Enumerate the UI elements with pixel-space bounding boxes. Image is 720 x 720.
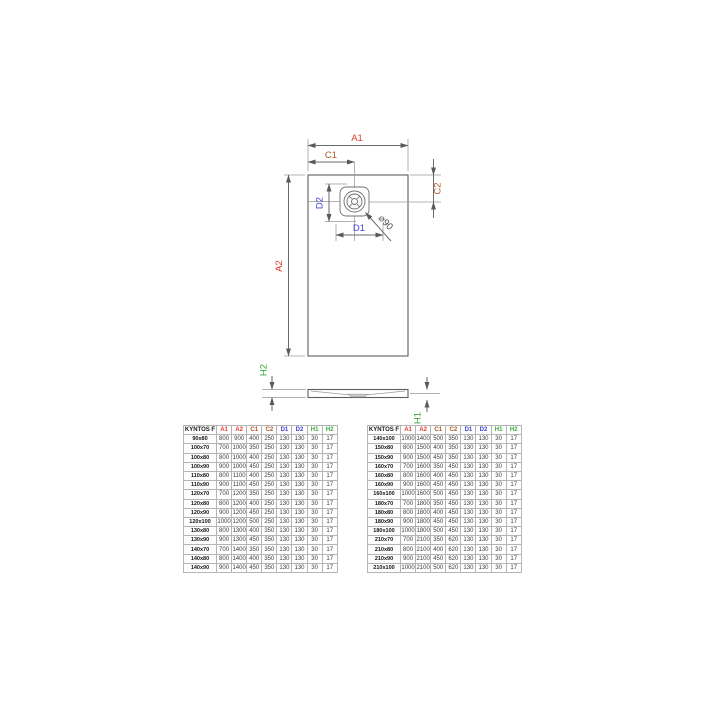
dim-value: 130 bbox=[292, 554, 307, 563]
dim-value: 250 bbox=[262, 462, 277, 471]
size-label: 100x70 bbox=[184, 444, 217, 453]
dim-value: 1600 bbox=[416, 471, 431, 480]
table-row: 120x9090012004502501301303017 bbox=[184, 508, 338, 517]
dim-value: 17 bbox=[506, 517, 521, 526]
dim-value: 17 bbox=[322, 499, 337, 508]
header-row: KYNTOS FA1A2C1C2D1D2H1H2 bbox=[368, 426, 522, 435]
size-label: 100x90 bbox=[184, 462, 217, 471]
col-header-kyntos-f: KYNTOS F bbox=[184, 426, 217, 435]
dim-value: 130 bbox=[277, 471, 292, 480]
dim-value: 30 bbox=[307, 554, 322, 563]
dim-value: 400 bbox=[431, 471, 446, 480]
dim-value: 1000 bbox=[232, 462, 247, 471]
dim-value: 130 bbox=[476, 545, 491, 554]
dim-value: 1200 bbox=[232, 499, 247, 508]
dim-value: 1600 bbox=[416, 462, 431, 471]
dim-value: 1300 bbox=[232, 536, 247, 545]
size-label: 150x80 bbox=[368, 444, 401, 453]
dim-value: 1400 bbox=[232, 545, 247, 554]
dim-value: 450 bbox=[446, 490, 461, 499]
dim-value: 30 bbox=[307, 490, 322, 499]
dim-value: 800 bbox=[401, 508, 416, 517]
table-row: 180x8080018004004501301303017 bbox=[368, 508, 522, 517]
dim-value: 800 bbox=[401, 444, 416, 453]
dim-value: 400 bbox=[247, 554, 262, 563]
dim-value: 900 bbox=[217, 536, 232, 545]
table-row: 160x7070016003504501301303017 bbox=[368, 462, 522, 471]
dim-value: 130 bbox=[277, 435, 292, 444]
dim-value: 130 bbox=[292, 462, 307, 471]
dim-value: 130 bbox=[277, 462, 292, 471]
dim-value: 1200 bbox=[232, 490, 247, 499]
dim-value: 17 bbox=[506, 563, 521, 572]
size-label: 140x90 bbox=[184, 563, 217, 572]
size-label: 160x100 bbox=[368, 490, 401, 499]
size-label: 90x80 bbox=[184, 435, 217, 444]
dim-value: 130 bbox=[476, 462, 491, 471]
dim-value: 30 bbox=[307, 481, 322, 490]
table-row: 100x8080010004002501301303017 bbox=[184, 453, 338, 462]
col-header-h2: H2 bbox=[322, 426, 337, 435]
dim-value: 130 bbox=[292, 517, 307, 526]
h2-extension-lines bbox=[262, 390, 306, 398]
dim-value: 130 bbox=[292, 444, 307, 453]
col-header-a1: A1 bbox=[401, 426, 416, 435]
dim-value: 130 bbox=[476, 508, 491, 517]
size-label: 110x80 bbox=[184, 471, 217, 480]
dim-value: 17 bbox=[506, 444, 521, 453]
dim-value: 700 bbox=[217, 444, 232, 453]
dim-value: 400 bbox=[431, 444, 446, 453]
size-label: 120x70 bbox=[184, 490, 217, 499]
dim-value: 30 bbox=[491, 527, 506, 536]
dim-value: 700 bbox=[217, 545, 232, 554]
dim-value: 450 bbox=[247, 563, 262, 572]
col-header-a2: A2 bbox=[416, 426, 431, 435]
page: A1 C1 C2 A2 D2 D1 ⌀90 bbox=[0, 0, 720, 720]
dim-value: 130 bbox=[476, 453, 491, 462]
dim-value: 350 bbox=[262, 536, 277, 545]
table-row: 160x9090016004504501301303017 bbox=[368, 481, 522, 490]
dim-value: 1800 bbox=[416, 499, 431, 508]
dim-value: 1000 bbox=[401, 527, 416, 536]
dim-value: 900 bbox=[401, 554, 416, 563]
dim-label-a2: A2 bbox=[274, 260, 285, 272]
dim-value: 800 bbox=[217, 471, 232, 480]
table-row: 150x9090015004503501301303017 bbox=[368, 453, 522, 462]
dim-value: 800 bbox=[217, 554, 232, 563]
dim-value: 130 bbox=[277, 536, 292, 545]
dim-value: 350 bbox=[262, 545, 277, 554]
dim-value: 1800 bbox=[416, 517, 431, 526]
size-label: 160x90 bbox=[368, 481, 401, 490]
size-label: 210x80 bbox=[368, 545, 401, 554]
dim-value: 1000 bbox=[217, 517, 232, 526]
col-header-h1: H1 bbox=[491, 426, 506, 435]
dim-value: 130 bbox=[277, 481, 292, 490]
dim-value: 2100 bbox=[416, 563, 431, 572]
dim-value: 130 bbox=[277, 545, 292, 554]
dim-value: 800 bbox=[217, 499, 232, 508]
dim-value: 800 bbox=[401, 471, 416, 480]
dim-value: 450 bbox=[247, 462, 262, 471]
dim-value: 130 bbox=[476, 563, 491, 572]
plan-view: A1 C1 C2 A2 D2 D1 ⌀90 bbox=[274, 133, 444, 356]
size-label: 140x80 bbox=[184, 554, 217, 563]
dim-value: 500 bbox=[431, 563, 446, 572]
dim-label-h1: H1 bbox=[413, 412, 424, 424]
dim-value: 130 bbox=[277, 508, 292, 517]
dim-value: 17 bbox=[506, 481, 521, 490]
table-row: 160x100100016005004501301303017 bbox=[368, 490, 522, 499]
dim-value: 350 bbox=[262, 563, 277, 572]
dim-value: 450 bbox=[446, 481, 461, 490]
dim-value: 350 bbox=[431, 536, 446, 545]
drain-bump bbox=[348, 394, 368, 397]
dim-value: 30 bbox=[491, 490, 506, 499]
dim-value: 17 bbox=[506, 490, 521, 499]
size-label: 140x100 bbox=[368, 435, 401, 444]
dim-value: 900 bbox=[217, 508, 232, 517]
col-header-d2: D2 bbox=[292, 426, 307, 435]
col-header-c1: C1 bbox=[247, 426, 262, 435]
dim-value: 450 bbox=[431, 554, 446, 563]
dim-label-c2: C2 bbox=[433, 182, 444, 194]
dim-value: 17 bbox=[322, 490, 337, 499]
dim-value: 400 bbox=[247, 499, 262, 508]
dim-label-d2: D2 bbox=[315, 197, 326, 209]
a2-extension-lines bbox=[284, 175, 305, 356]
dim-value: 30 bbox=[491, 563, 506, 572]
dim-value: 17 bbox=[506, 453, 521, 462]
size-label: 120x100 bbox=[184, 517, 217, 526]
dim-value: 17 bbox=[506, 435, 521, 444]
dim-value: 17 bbox=[322, 471, 337, 480]
dim-value: 30 bbox=[491, 453, 506, 462]
dim-value: 450 bbox=[446, 462, 461, 471]
col-header-c2: C2 bbox=[262, 426, 277, 435]
dim-value: 30 bbox=[307, 517, 322, 526]
dim-value: 450 bbox=[431, 517, 446, 526]
dim-value: 130 bbox=[461, 536, 476, 545]
dim-value: 130 bbox=[461, 508, 476, 517]
table-row: 100x9090010004502501301303017 bbox=[184, 462, 338, 471]
size-label: 180x90 bbox=[368, 517, 401, 526]
dim-value: 1800 bbox=[416, 508, 431, 517]
dim-value: 1400 bbox=[416, 435, 431, 444]
dim-value: 130 bbox=[292, 563, 307, 572]
dim-value: 130 bbox=[292, 499, 307, 508]
dim-value: 30 bbox=[491, 444, 506, 453]
dim-value: 130 bbox=[277, 490, 292, 499]
col-header-h1: H1 bbox=[307, 426, 322, 435]
dim-value: 130 bbox=[461, 481, 476, 490]
dim-value: 1400 bbox=[232, 563, 247, 572]
dim-value: 17 bbox=[506, 527, 521, 536]
dim-value: 350 bbox=[446, 453, 461, 462]
table-row: 110x9090011004502501301303017 bbox=[184, 481, 338, 490]
dim-value: 30 bbox=[491, 499, 506, 508]
side-view: H2 H1 bbox=[259, 364, 441, 424]
dim-value: 900 bbox=[217, 462, 232, 471]
dim-value: 450 bbox=[431, 481, 446, 490]
dim-value: 130 bbox=[461, 490, 476, 499]
dim-value: 1500 bbox=[416, 453, 431, 462]
dim-value: 250 bbox=[262, 499, 277, 508]
dim-value: 250 bbox=[262, 490, 277, 499]
dim-value: 17 bbox=[322, 527, 337, 536]
dim-value: 130 bbox=[461, 545, 476, 554]
dim-value: 30 bbox=[307, 444, 322, 453]
dim-value: 500 bbox=[247, 517, 262, 526]
table-row: 130x8080013004003501301303017 bbox=[184, 527, 338, 536]
dim-value: 17 bbox=[506, 499, 521, 508]
dim-value: 800 bbox=[217, 453, 232, 462]
dim-value: 700 bbox=[217, 490, 232, 499]
dim-value: 130 bbox=[476, 517, 491, 526]
dim-value: 17 bbox=[506, 462, 521, 471]
dim-value: 17 bbox=[506, 471, 521, 480]
dim-value: 130 bbox=[277, 444, 292, 453]
dim-label-h2: H2 bbox=[259, 364, 270, 376]
table-row: 120x7070012003502501301303017 bbox=[184, 490, 338, 499]
dim-value: 130 bbox=[461, 444, 476, 453]
dim-value: 130 bbox=[461, 517, 476, 526]
dim-value: 350 bbox=[247, 490, 262, 499]
size-label: 110x90 bbox=[184, 481, 217, 490]
dim-value: 350 bbox=[262, 527, 277, 536]
dim-value: 30 bbox=[307, 499, 322, 508]
size-label: 160x70 bbox=[368, 462, 401, 471]
col-header-d1: D1 bbox=[461, 426, 476, 435]
dim-value: 130 bbox=[277, 563, 292, 572]
dim-value: 450 bbox=[446, 499, 461, 508]
size-label: 210x100 bbox=[368, 563, 401, 572]
dim-value: 30 bbox=[491, 481, 506, 490]
dim-value: 30 bbox=[307, 462, 322, 471]
col-header-c2: C2 bbox=[446, 426, 461, 435]
size-table-right: KYNTOS FA1A2C1C2D1D2H1H2140x100100014005… bbox=[367, 425, 522, 573]
dim-value: 130 bbox=[476, 481, 491, 490]
dim-value: 30 bbox=[307, 563, 322, 572]
dim-value: 1000 bbox=[232, 453, 247, 462]
table-row: 210x9090021004506201301303017 bbox=[368, 554, 522, 563]
table-row: 140x9090014004503501301303017 bbox=[184, 563, 338, 572]
dim-value: 900 bbox=[401, 481, 416, 490]
dim-value: 130 bbox=[292, 490, 307, 499]
dim-value: 900 bbox=[401, 517, 416, 526]
size-label: 150x90 bbox=[368, 453, 401, 462]
dim-value: 130 bbox=[476, 490, 491, 499]
dim-value: 130 bbox=[461, 453, 476, 462]
dim-value: 17 bbox=[322, 444, 337, 453]
dim-value: 130 bbox=[461, 563, 476, 572]
dim-value: 130 bbox=[461, 462, 476, 471]
col-header-d2: D2 bbox=[476, 426, 491, 435]
dim-value: 1100 bbox=[232, 481, 247, 490]
dim-value: 250 bbox=[262, 471, 277, 480]
dim-value: 450 bbox=[446, 517, 461, 526]
size-label: 140x70 bbox=[184, 545, 217, 554]
size-label: 130x90 bbox=[184, 536, 217, 545]
size-label: 180x70 bbox=[368, 499, 401, 508]
size-label: 100x80 bbox=[184, 453, 217, 462]
dim-value: 350 bbox=[247, 545, 262, 554]
dim-label-c1: C1 bbox=[325, 150, 337, 161]
dim-value: 700 bbox=[401, 499, 416, 508]
table-row: 110x8080011004002501301303017 bbox=[184, 471, 338, 480]
dim-value: 30 bbox=[491, 536, 506, 545]
table-row: 160x8080016004004501301303017 bbox=[368, 471, 522, 480]
dim-value: 350 bbox=[446, 444, 461, 453]
dim-value: 30 bbox=[307, 536, 322, 545]
size-label: 120x90 bbox=[184, 508, 217, 517]
dim-value: 800 bbox=[401, 545, 416, 554]
dim-value: 30 bbox=[307, 545, 322, 554]
dim-value: 130 bbox=[461, 554, 476, 563]
dim-value: 250 bbox=[262, 508, 277, 517]
size-label: 120x80 bbox=[184, 499, 217, 508]
dim-value: 700 bbox=[401, 462, 416, 471]
dim-value: 620 bbox=[446, 545, 461, 554]
dim-value: 130 bbox=[292, 536, 307, 545]
dim-value: 1600 bbox=[416, 490, 431, 499]
dim-value: 130 bbox=[461, 471, 476, 480]
dim-value: 400 bbox=[247, 453, 262, 462]
dim-value: 30 bbox=[307, 435, 322, 444]
dim-value: 30 bbox=[307, 527, 322, 536]
dim-value: 17 bbox=[322, 545, 337, 554]
table-row: 130x9090013004503501301303017 bbox=[184, 536, 338, 545]
dim-value: 130 bbox=[461, 435, 476, 444]
dim-value: 30 bbox=[491, 508, 506, 517]
dim-value: 450 bbox=[446, 508, 461, 517]
dim-value: 450 bbox=[247, 481, 262, 490]
col-header-h2: H2 bbox=[506, 426, 521, 435]
dim-value: 350 bbox=[262, 554, 277, 563]
dim-value: 350 bbox=[446, 435, 461, 444]
dim-value: 250 bbox=[262, 453, 277, 462]
table-row: 180x7070018003504501301303017 bbox=[368, 499, 522, 508]
dim-value: 1200 bbox=[232, 517, 247, 526]
dim-value: 130 bbox=[476, 499, 491, 508]
dim-value: 400 bbox=[431, 508, 446, 517]
dim-value: 620 bbox=[446, 536, 461, 545]
dim-value: 450 bbox=[446, 471, 461, 480]
table-row: 90x808009004002501301303017 bbox=[184, 435, 338, 444]
dim-value: 1800 bbox=[416, 527, 431, 536]
table-row: 120x100100012005002501301303017 bbox=[184, 517, 338, 526]
dim-value: 30 bbox=[491, 554, 506, 563]
dim-value: 400 bbox=[247, 435, 262, 444]
size-label: 180x80 bbox=[368, 508, 401, 517]
dim-value: 130 bbox=[292, 481, 307, 490]
dim-value: 450 bbox=[247, 508, 262, 517]
dim-value: 350 bbox=[431, 499, 446, 508]
col-header-a1: A1 bbox=[217, 426, 232, 435]
table-row: 210x8080021004006201301303017 bbox=[368, 545, 522, 554]
dim-value: 130 bbox=[476, 435, 491, 444]
dim-value: 2100 bbox=[416, 554, 431, 563]
dim-value: 250 bbox=[262, 517, 277, 526]
dim-value: 2100 bbox=[416, 536, 431, 545]
dim-value: 17 bbox=[322, 536, 337, 545]
dim-value: 130 bbox=[292, 471, 307, 480]
dim-value: 30 bbox=[491, 517, 506, 526]
dim-value: 130 bbox=[277, 517, 292, 526]
dim-value: 17 bbox=[322, 462, 337, 471]
dim-value: 130 bbox=[476, 536, 491, 545]
dim-value: 1000 bbox=[401, 563, 416, 572]
dim-value: 30 bbox=[491, 471, 506, 480]
dim-label-a1: A1 bbox=[351, 133, 363, 144]
size-label: 180x100 bbox=[368, 527, 401, 536]
dim-value: 17 bbox=[322, 508, 337, 517]
table-row: 120x8080012004002501301303017 bbox=[184, 499, 338, 508]
dim-value: 500 bbox=[431, 490, 446, 499]
dim-value: 30 bbox=[307, 508, 322, 517]
dim-value: 130 bbox=[277, 554, 292, 563]
dim-value: 30 bbox=[307, 471, 322, 480]
dim-value: 17 bbox=[506, 554, 521, 563]
dim-value: 1000 bbox=[232, 444, 247, 453]
dim-value: 17 bbox=[322, 563, 337, 572]
dim-value: 17 bbox=[322, 435, 337, 444]
dim-value: 1000 bbox=[401, 490, 416, 499]
dim-value: 130 bbox=[476, 554, 491, 563]
dim-value: 250 bbox=[262, 444, 277, 453]
dim-value: 1400 bbox=[232, 554, 247, 563]
dim-value: 900 bbox=[217, 563, 232, 572]
table-row: 100x7070010003502501301303017 bbox=[184, 444, 338, 453]
dim-value: 130 bbox=[292, 545, 307, 554]
size-label: 130x80 bbox=[184, 527, 217, 536]
dim-value: 130 bbox=[461, 499, 476, 508]
dim-value: 130 bbox=[277, 499, 292, 508]
table-row: 140x8080014004003501301303017 bbox=[184, 554, 338, 563]
dim-value: 450 bbox=[446, 527, 461, 536]
dim-value: 800 bbox=[217, 527, 232, 536]
dim-value: 350 bbox=[431, 462, 446, 471]
dim-value: 800 bbox=[217, 435, 232, 444]
technical-drawing: A1 C1 C2 A2 D2 D1 ⌀90 bbox=[0, 0, 720, 720]
dim-value: 500 bbox=[431, 527, 446, 536]
dim-value: 130 bbox=[476, 527, 491, 536]
table-row: 150x8080015004003501301303017 bbox=[368, 444, 522, 453]
dim-value: 900 bbox=[217, 481, 232, 490]
size-label: 160x80 bbox=[368, 471, 401, 480]
dim-value: 1100 bbox=[232, 471, 247, 480]
dim-value: 130 bbox=[292, 527, 307, 536]
col-header-c1: C1 bbox=[431, 426, 446, 435]
dim-value: 30 bbox=[491, 435, 506, 444]
size-table-left: KYNTOS FA1A2C1C2D1D2H1H290x8080090040025… bbox=[183, 425, 338, 573]
dim-value: 17 bbox=[322, 453, 337, 462]
dim-value: 450 bbox=[431, 453, 446, 462]
dim-value: 1200 bbox=[232, 508, 247, 517]
header-row: KYNTOS FA1A2C1C2D1D2H1H2 bbox=[184, 426, 338, 435]
dim-value: 130 bbox=[461, 527, 476, 536]
dim-value: 30 bbox=[491, 462, 506, 471]
dim-value: 250 bbox=[262, 435, 277, 444]
dim-value: 30 bbox=[491, 545, 506, 554]
dim-value: 130 bbox=[292, 435, 307, 444]
dim-value: 130 bbox=[277, 527, 292, 536]
table-row: 140x100100014005003501301303017 bbox=[368, 435, 522, 444]
dim-value: 700 bbox=[401, 536, 416, 545]
dim-value: 1000 bbox=[401, 435, 416, 444]
dim-value: 900 bbox=[232, 435, 247, 444]
